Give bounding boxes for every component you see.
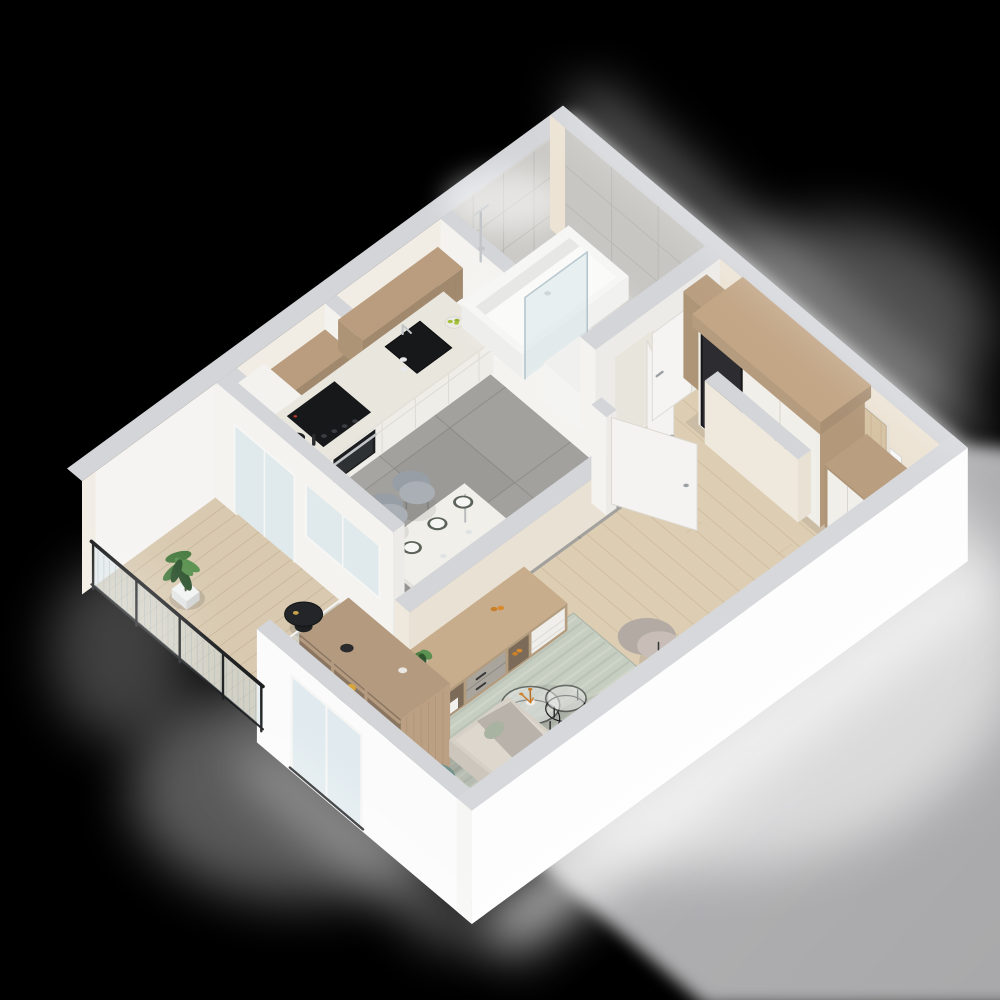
floorplan-3d-render [0, 0, 1000, 1000]
floorplan-scene [0, 0, 1000, 1000]
